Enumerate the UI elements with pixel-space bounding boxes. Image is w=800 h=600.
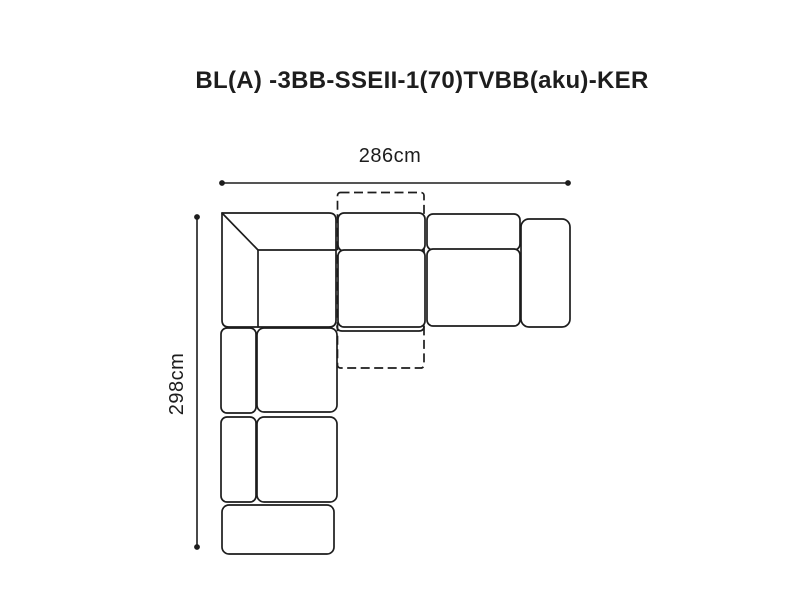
- side-module-1-backrest: [221, 328, 256, 413]
- tv-module-backrest: [338, 213, 425, 251]
- height-dimension-end-dot: [194, 544, 200, 550]
- tv-module-seat: [338, 250, 425, 327]
- height-dimension: 298cm: [166, 214, 200, 550]
- side-module-2-seat: [257, 417, 337, 502]
- seat-module-backrest: [427, 214, 520, 250]
- side-module-1-seat: [257, 328, 337, 412]
- product-code-title: BL(A) -3BB-SSEII-1(70)TVBB(aku)-KER: [195, 67, 648, 94]
- right-armrest: [521, 219, 570, 327]
- seat-module-seat: [427, 249, 520, 326]
- width-dimension-end-dot: [565, 180, 571, 186]
- height-dimension-label: 298cm: [166, 353, 188, 416]
- sofa-outline: [221, 193, 570, 555]
- furniture-diagram-page: BL(A) -3BB-SSEII-1(70)TVBB(aku)-KER 286c…: [0, 0, 800, 600]
- end-module: [222, 505, 334, 554]
- width-dimension: 286cm: [219, 145, 571, 186]
- width-dimension-start-dot: [219, 180, 225, 186]
- height-dimension-start-dot: [194, 214, 200, 220]
- width-dimension-label: 286cm: [359, 145, 422, 167]
- side-module-2-backrest: [221, 417, 256, 502]
- sofa-top-view-diagram: BL(A) -3BB-SSEII-1(70)TVBB(aku)-KER 286c…: [0, 0, 800, 600]
